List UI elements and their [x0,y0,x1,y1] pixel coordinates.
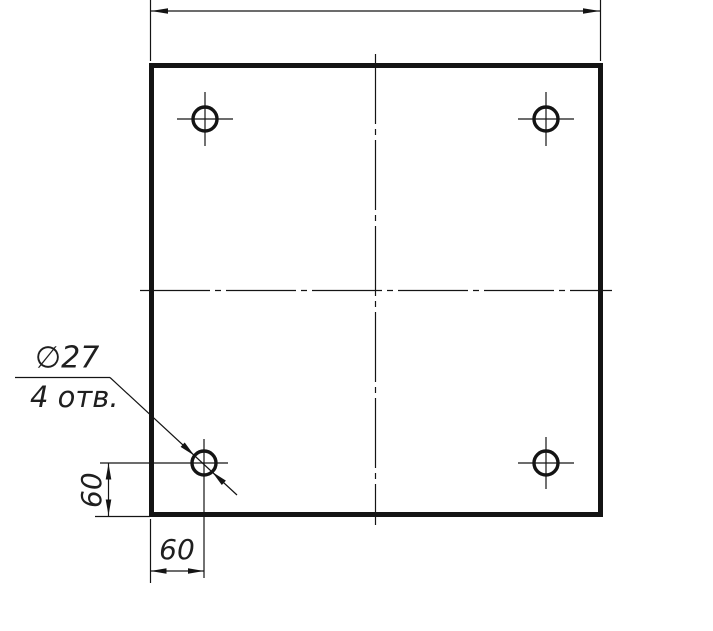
hole-bottom-right [518,437,574,489]
plate-drawing: ∅27 4 отв. 60 60 [0,0,713,631]
diameter-label: ∅27 [35,341,99,376]
annotation-texts: ∅27 4 отв. 60 60 [30,341,195,567]
arrowhead-right [583,8,600,14]
horizontal-offset-label: 60 [159,533,195,566]
arrowhead-left [151,568,167,574]
top-width-dimension [151,0,601,61]
arrowhead-right [188,568,204,574]
holes-count-label: 4 отв. [30,380,119,414]
drawing-canvas: ∅27 4 отв. 60 60 [0,0,713,631]
hole-top-right [518,92,574,146]
vertical-offset-label: 60 [75,472,108,508]
hole-top-left [177,92,233,146]
arrowhead-left [151,8,168,14]
